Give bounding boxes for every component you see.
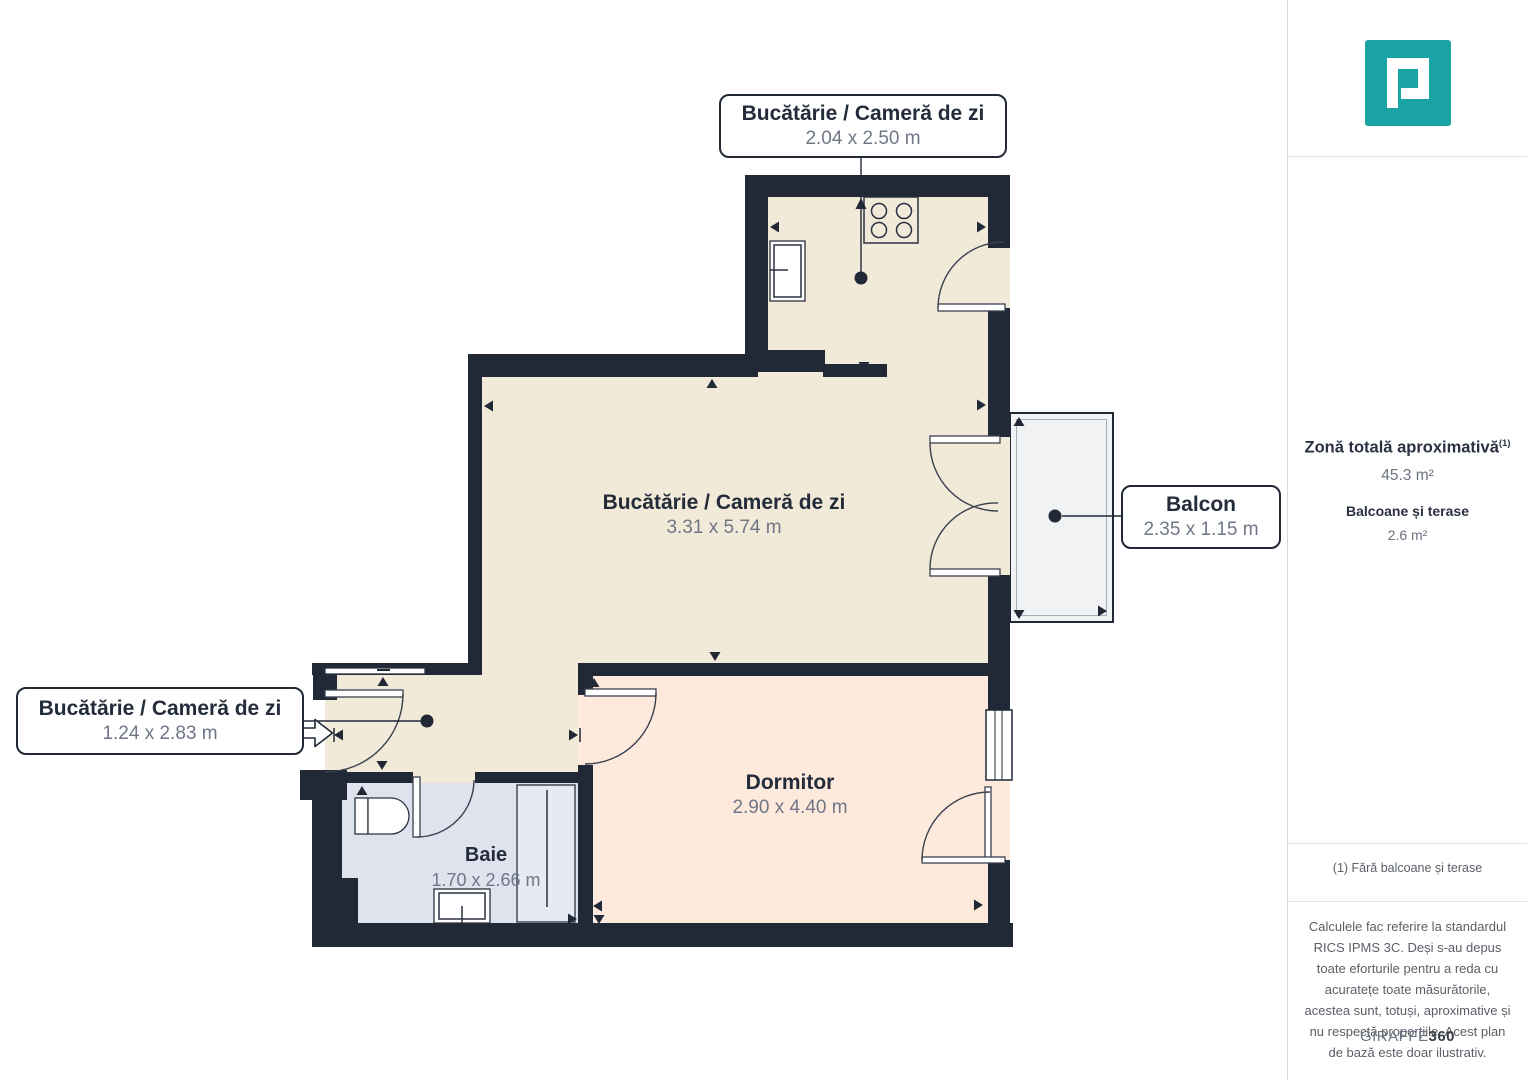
room-title: Bucătărie / Cameră de zi	[39, 696, 282, 722]
balconies-value: 2.6 m²	[1288, 527, 1527, 543]
total-area-text: Zonă totală aproximativă	[1304, 439, 1498, 457]
footnote: (1) Fără balcoane și terase	[1288, 861, 1527, 875]
hall-area-label-box: Bucătărie / Cameră de zi 1.24 x 2.83 m	[16, 687, 304, 755]
total-area-value: 45.3 m²	[1288, 467, 1527, 485]
room-dimensions: 1.24 x 2.83 m	[102, 722, 217, 746]
bathroom-sink-icon	[434, 889, 490, 923]
room-title: Bucătărie / Cameră de zi	[742, 101, 985, 127]
toilet-icon	[355, 798, 409, 834]
total-area-label: Zonă totală aproximativă(1)	[1288, 438, 1527, 458]
divider	[1288, 156, 1527, 157]
brand-suffix: 360	[1428, 1028, 1455, 1045]
wardrobe-icon	[325, 668, 425, 674]
window-icon	[986, 710, 1012, 780]
balcony	[1010, 413, 1113, 622]
balcony-label-box: Balcon 2.35 x 1.15 m	[1121, 485, 1281, 549]
room-title: Balcon	[1166, 492, 1236, 518]
brand-wordmark: GIRAFFE360	[1288, 1028, 1527, 1045]
floor-plan-page: Bucătărie / Cameră de zi 2.04 x 2.50 m B…	[0, 0, 1527, 1080]
divider	[1288, 843, 1527, 844]
room-dimensions: 2.35 x 1.15 m	[1143, 518, 1258, 542]
floor-areas	[325, 197, 988, 925]
floor-plan-drawing	[0, 0, 1287, 1080]
kitchen-sink-icon	[770, 241, 805, 301]
brand-name: GIRAFFE	[1360, 1028, 1429, 1045]
room-dimensions: 2.04 x 2.50 m	[805, 127, 920, 151]
footnote-ref: (1)	[1499, 438, 1511, 449]
balconies-label: Balcoane și terase	[1288, 503, 1527, 519]
shower-icon	[517, 785, 575, 922]
divider	[1288, 901, 1527, 902]
info-sidebar: Zonă totală aproximativă(1) 45.3 m² Balc…	[1287, 0, 1527, 1080]
logo-glyph-icon	[1365, 40, 1451, 126]
kitchen-area-label-box: Bucătărie / Cameră de zi 2.04 x 2.50 m	[719, 94, 1007, 158]
giraffe360-logo	[1365, 40, 1451, 126]
